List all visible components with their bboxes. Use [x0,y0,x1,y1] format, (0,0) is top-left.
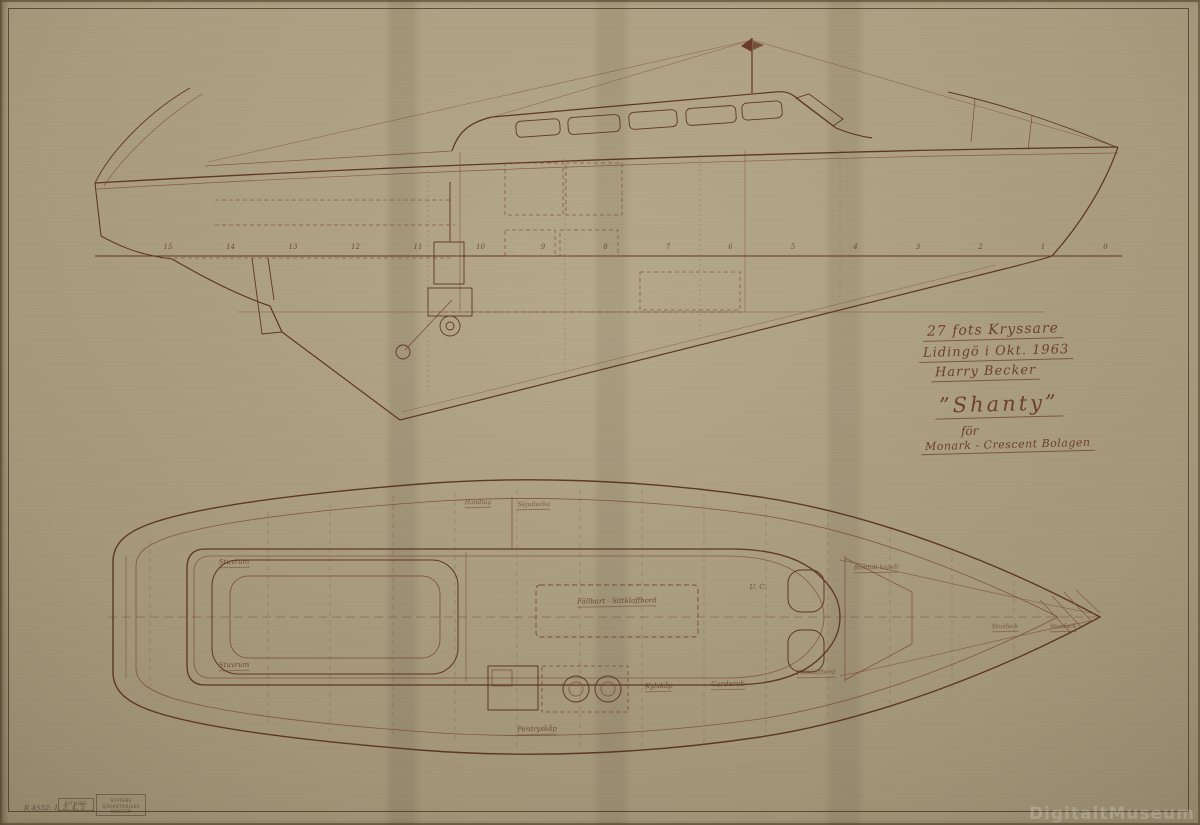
station-number: 10 [476,243,485,251]
windshield [796,94,843,126]
stove-burner-1 [563,676,589,702]
station-number: 15 [164,243,173,251]
label-fallklaffbord: Fällklaffbord [797,669,836,679]
sheer-line [95,147,1118,183]
rigging-stays [208,40,1118,162]
label-table: Fällbart - Sittklaffbord [577,596,657,607]
cockpit-seat-stbd [788,570,824,612]
label-stuvfack-1: Stuvfack [992,623,1019,632]
label-stuvrum-port: Stuvrum [219,661,250,672]
plan-inner-deck-line [136,498,1058,735]
station-number: 14 [226,243,235,251]
transom [95,183,101,236]
forecabin-lines [845,556,912,682]
station-number: 9 [541,243,545,251]
watermark: DigitaltMuseum [1029,804,1195,824]
cockpit-seat-port [788,630,824,672]
stamp-museum-line3: MUSEUM [97,809,145,815]
engine-detail [428,182,472,336]
stove-burner-2 [595,676,621,702]
profile-station-verticals [428,150,840,395]
saloon-table [536,585,698,637]
station-number: 6 [728,243,732,251]
station-number: 3 [916,243,920,251]
propeller [396,345,410,359]
station-number: 7 [666,243,670,251]
plan-view-drawing [108,480,1102,754]
galley [488,666,628,712]
station-number: 2 [978,243,982,251]
boat-name: ”Shanty” [935,390,1063,419]
label-garderob: Garderob [711,680,745,691]
bow-stanchion [971,99,975,142]
label-stuvrum-stbd: Stuvrum [219,558,250,569]
prop-shaft [405,300,452,350]
plan-station-verticals [150,489,1014,748]
station-number: 13 [289,243,298,251]
stem [1052,147,1118,256]
label-kylskap: Kylskåp [645,682,673,692]
designer-signature: Harry Becker [931,363,1041,383]
cockpit-coaming [205,151,452,166]
station-number: 11 [414,243,423,251]
keel-profile [172,256,1052,420]
station-number: 0 [1103,243,1107,251]
cabin-profile [452,92,872,151]
label-pentryskap: Pentryskåp [517,725,557,736]
stamp-accession-number: R 4532: 1, 3, 4, 5 [24,803,85,812]
profile-interior-dashed [160,163,745,312]
deck-line [97,153,1118,189]
station-number: 5 [791,243,795,251]
drawing-sheet: 1514131211109876543210 27 fots Kryssare … [0,0,1200,825]
title-preposition: för [957,424,983,440]
stamp-museum-box: STATENS SJÖHISTORISKA MUSEUM [96,794,146,816]
station-number: 4 [853,243,857,251]
museum-stamp: RITNING STATENS SJÖHISTORISKA MUSEUM R 4… [24,792,154,820]
label-skjutlucka: Skjutlucka [518,501,550,511]
label-uc: U. C. [749,583,766,592]
label-kapell: Bomtält kapell [854,564,899,574]
label-stuvfack-2: Stuvfack [1050,623,1077,632]
label-handtag: Handtag [465,499,491,508]
station-number: 1 [1041,243,1045,251]
title-boat-type: 27 fots Kryssare [923,320,1063,342]
pennant-icon [753,41,764,50]
keel-inner-line [402,265,996,412]
stern-railing-outer [95,88,190,183]
stern-railing-inner [104,94,202,186]
station-number: 12 [351,243,360,251]
profile-view-drawing [95,38,1122,420]
station-number: 8 [603,243,607,251]
